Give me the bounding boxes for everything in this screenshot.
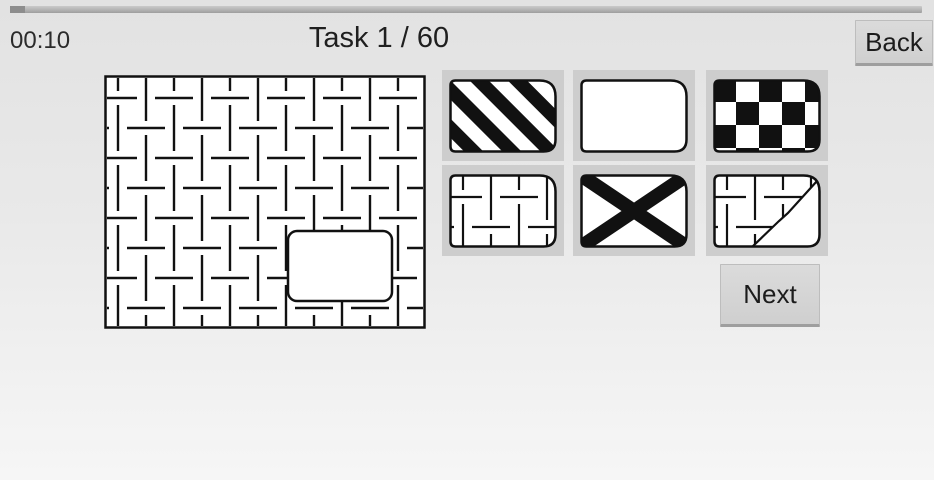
blank-card-icon <box>580 79 688 153</box>
option-checkerboard[interactable] <box>706 70 828 161</box>
timer-text: 00:10 <box>10 27 70 55</box>
diagonal-stripes-icon <box>449 79 557 153</box>
weave-pattern-icon <box>449 174 557 248</box>
puzzle-pattern-image <box>104 75 426 329</box>
option-weave-torn[interactable] <box>706 165 828 256</box>
missing-piece-cutout <box>288 231 392 301</box>
option-weave-match[interactable] <box>442 165 564 256</box>
option-blank-white[interactable] <box>573 70 695 161</box>
puzzle-board <box>104 75 426 329</box>
weave-torn-icon <box>713 174 821 248</box>
page-title: Task 1 / 60 <box>309 22 449 55</box>
checkerboard-icon <box>713 79 821 153</box>
option-diagonal-stripes[interactable] <box>442 70 564 161</box>
option-x-cross[interactable] <box>573 165 695 256</box>
x-cross-icon <box>580 174 688 248</box>
next-button[interactable]: Next <box>720 264 820 327</box>
back-button[interactable]: Back <box>855 20 933 66</box>
task-progress-fill <box>10 6 25 13</box>
task-progress-bar <box>10 6 922 13</box>
app-screen: 00:10 Task 1 / 60 Back <box>0 0 934 480</box>
